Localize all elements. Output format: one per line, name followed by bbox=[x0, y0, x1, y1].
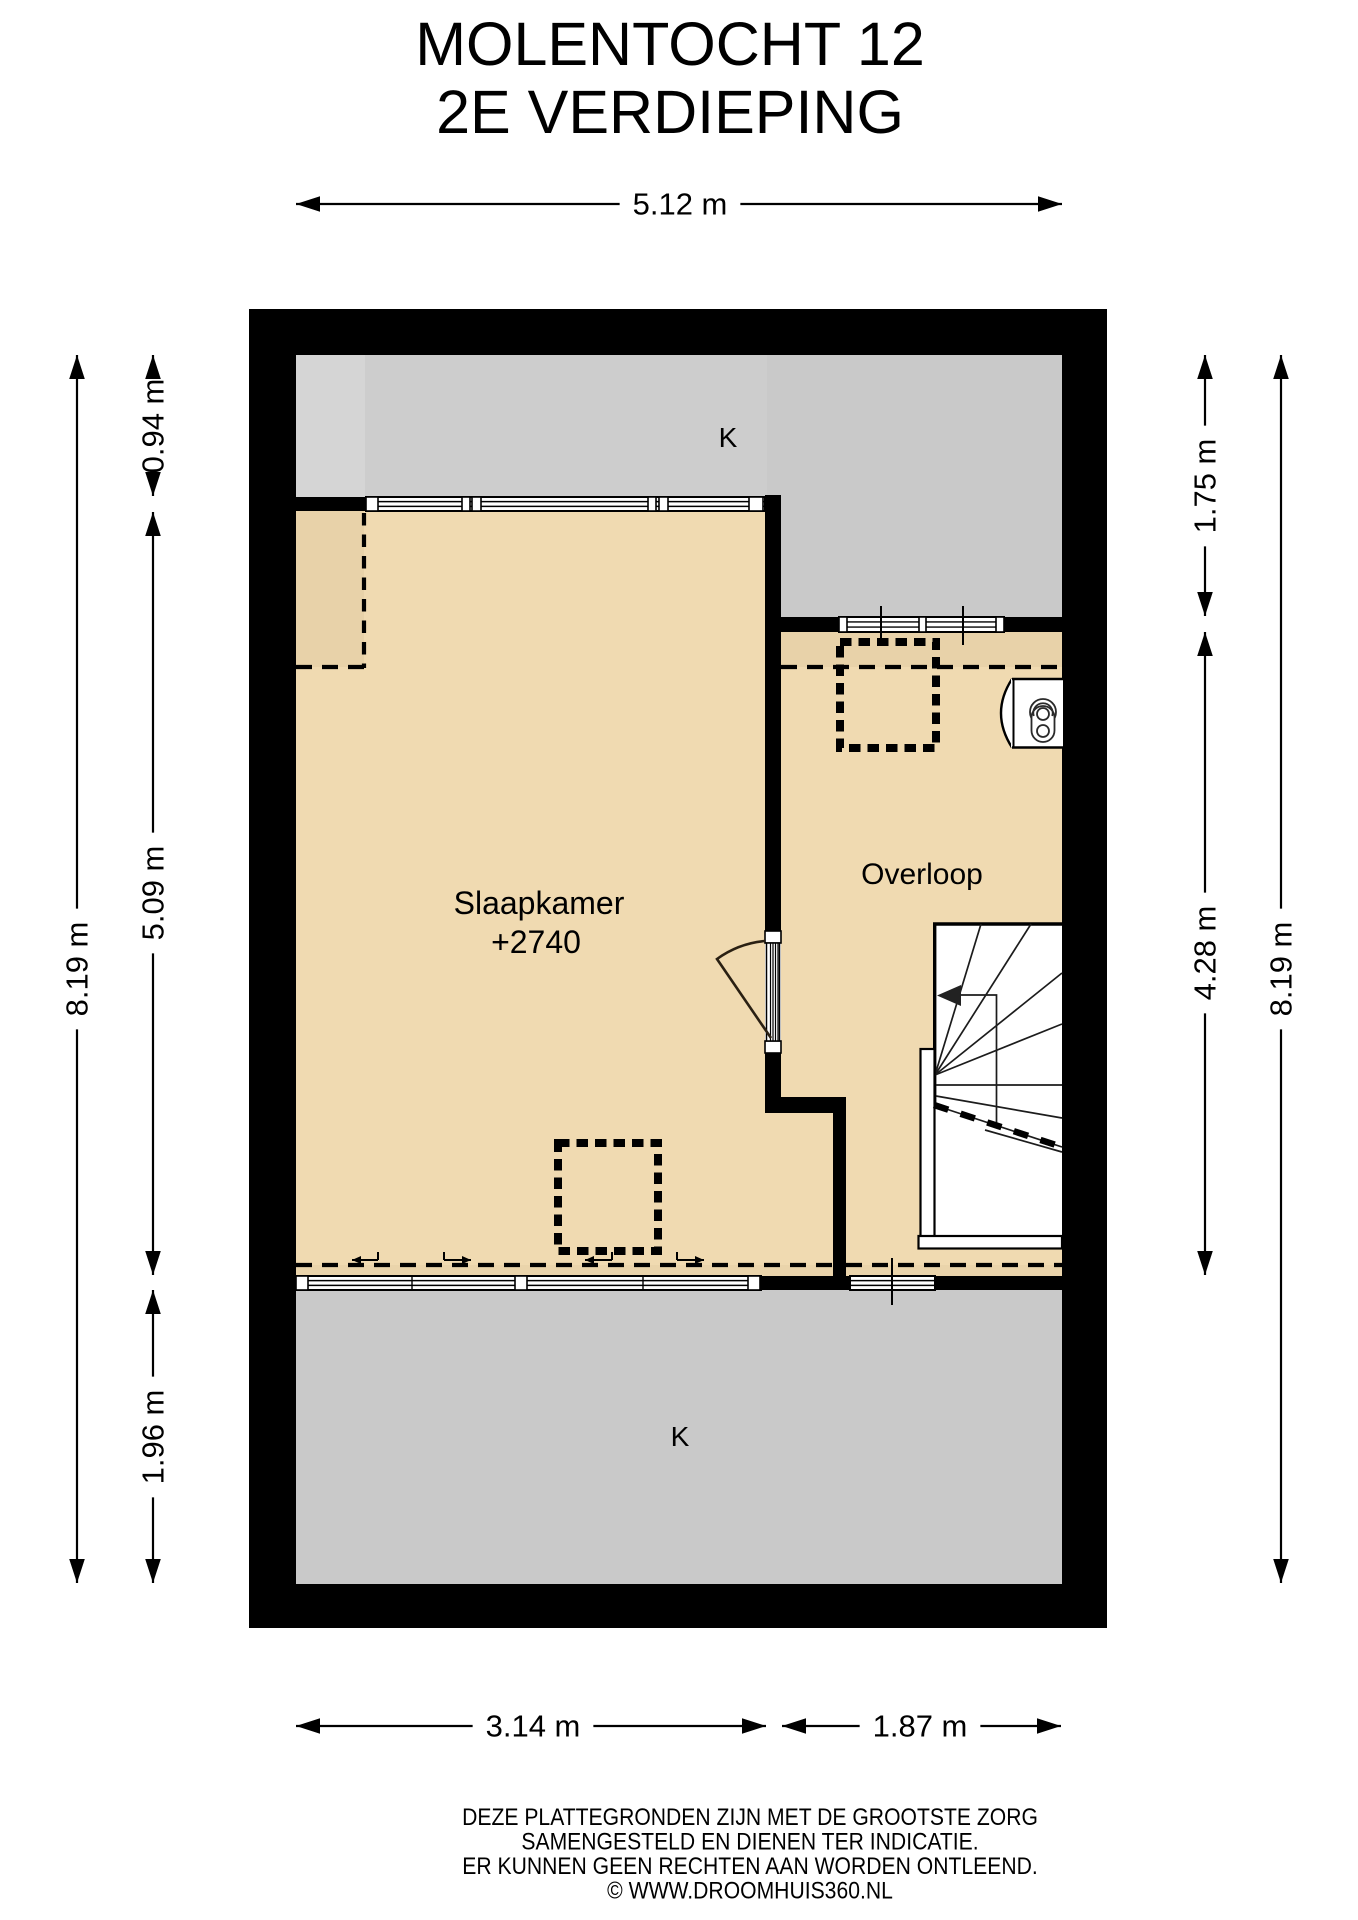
svg-text:8.19 m: 8.19 m bbox=[60, 922, 95, 1017]
svg-text:K: K bbox=[671, 1421, 690, 1452]
svg-text:Overloop: Overloop bbox=[861, 858, 983, 891]
svg-text:1.87 m: 1.87 m bbox=[873, 1709, 968, 1744]
svg-text:5.09 m: 5.09 m bbox=[136, 846, 171, 941]
svg-text:3.14 m: 3.14 m bbox=[486, 1709, 581, 1744]
svg-text:2E VERDIEPING: 2E VERDIEPING bbox=[436, 78, 904, 146]
svg-text:K: K bbox=[719, 422, 738, 453]
svg-text:+2740: +2740 bbox=[491, 924, 581, 960]
svg-text:8.19 m: 8.19 m bbox=[1264, 922, 1299, 1017]
svg-text:MOLENTOCHT 12: MOLENTOCHT 12 bbox=[415, 10, 925, 78]
svg-text:1.75 m: 1.75 m bbox=[1188, 439, 1223, 534]
svg-text:Slaapkamer: Slaapkamer bbox=[454, 885, 625, 921]
svg-text:© WWW.DROOMHUIS360.NL: © WWW.DROOMHUIS360.NL bbox=[607, 1876, 893, 1904]
svg-text:1.96 m: 1.96 m bbox=[136, 1390, 171, 1485]
svg-text:4.28 m: 4.28 m bbox=[1188, 906, 1223, 1001]
svg-text:0.94 m: 0.94 m bbox=[136, 379, 171, 474]
svg-text:5.12 m: 5.12 m bbox=[633, 187, 728, 222]
